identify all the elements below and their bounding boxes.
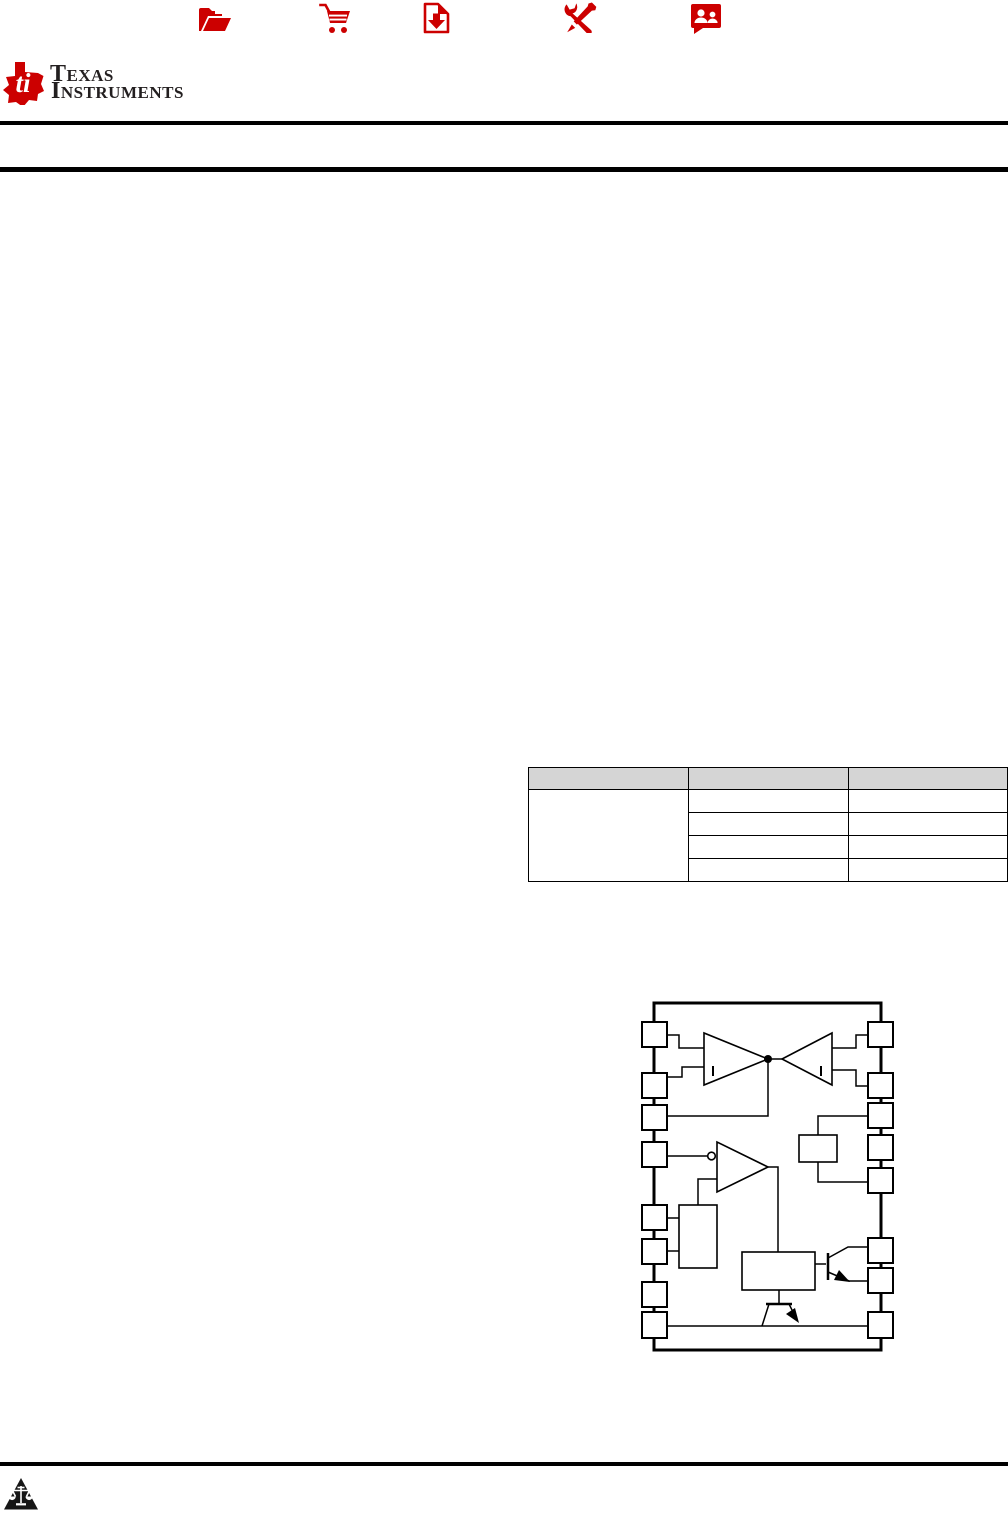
comparator-3: [717, 1142, 768, 1192]
tools-software-link[interactable]: [562, 2, 598, 38]
top-rule-1: [0, 121, 1008, 125]
pin-box: [642, 1022, 667, 1047]
scales-of-justice-icon: [3, 1477, 39, 1511]
table-header-row: [529, 768, 1008, 790]
order-now-link[interactable]: [319, 2, 351, 39]
pin-box: [868, 1135, 893, 1160]
pin-box: [868, 1022, 893, 1047]
pin-box: [868, 1103, 893, 1128]
functional-block-diagram: [630, 995, 910, 1365]
table-cell: [849, 813, 1008, 836]
pin-box: [868, 1268, 893, 1293]
cart-icon: [319, 2, 351, 34]
table-header-cell: [849, 768, 1008, 790]
junction-dot: [764, 1055, 772, 1063]
table-row: [529, 790, 1008, 813]
table-cell: [849, 859, 1008, 882]
footer-rule: [0, 1462, 1008, 1466]
table-cell: [689, 790, 849, 813]
pin-box: [868, 1168, 893, 1193]
technical-documents-link[interactable]: [422, 2, 451, 39]
pin-box: [868, 1312, 893, 1338]
download-document-icon: [422, 2, 451, 34]
pin-box: [642, 1142, 667, 1167]
ti-bug-letters: ti: [15, 68, 31, 98]
output-transistor-emitter-arrow: [834, 1270, 850, 1282]
table-merged-cell: [529, 790, 689, 882]
table-cell: [689, 836, 849, 859]
pin-box: [642, 1282, 667, 1307]
flip-flop-block: [679, 1205, 717, 1268]
table-cell: [689, 813, 849, 836]
pin-box: [642, 1239, 667, 1264]
support-community-link[interactable]: [689, 2, 722, 39]
legal-notice: [3, 1477, 39, 1513]
table-cell: [689, 859, 849, 882]
pin-box: [642, 1073, 667, 1098]
pin-box: [642, 1205, 667, 1230]
table-header-cell: [529, 768, 689, 790]
table-cell: [849, 790, 1008, 813]
support-community-icon: [689, 2, 722, 34]
inverter-bubble: [708, 1152, 716, 1160]
pin-box: [642, 1105, 667, 1130]
logo-instruments: Instruments: [51, 82, 184, 100]
ti-logo: ti Texas Instruments: [2, 60, 202, 106]
top-rule-2: [0, 167, 1008, 172]
comparator-2: [782, 1033, 832, 1085]
folder-icon: [197, 4, 233, 34]
pin-box: [868, 1238, 893, 1263]
datasheet-page: ti Texas Instruments: [0, 0, 1008, 1513]
table-cell: [849, 836, 1008, 859]
pin-box: [868, 1073, 893, 1098]
product-folder-link[interactable]: [197, 4, 233, 39]
pin-box: [642, 1312, 667, 1338]
comparator-1: [704, 1033, 768, 1085]
table-header-cell: [689, 768, 849, 790]
discharge-transistor-emitter-arrow: [786, 1308, 799, 1323]
inner-block: [799, 1135, 837, 1162]
tools-icon: [562, 2, 598, 33]
device-information-table: [528, 767, 1008, 882]
output-stage-block: [742, 1252, 815, 1290]
ti-bug-icon: ti: [2, 61, 46, 105]
